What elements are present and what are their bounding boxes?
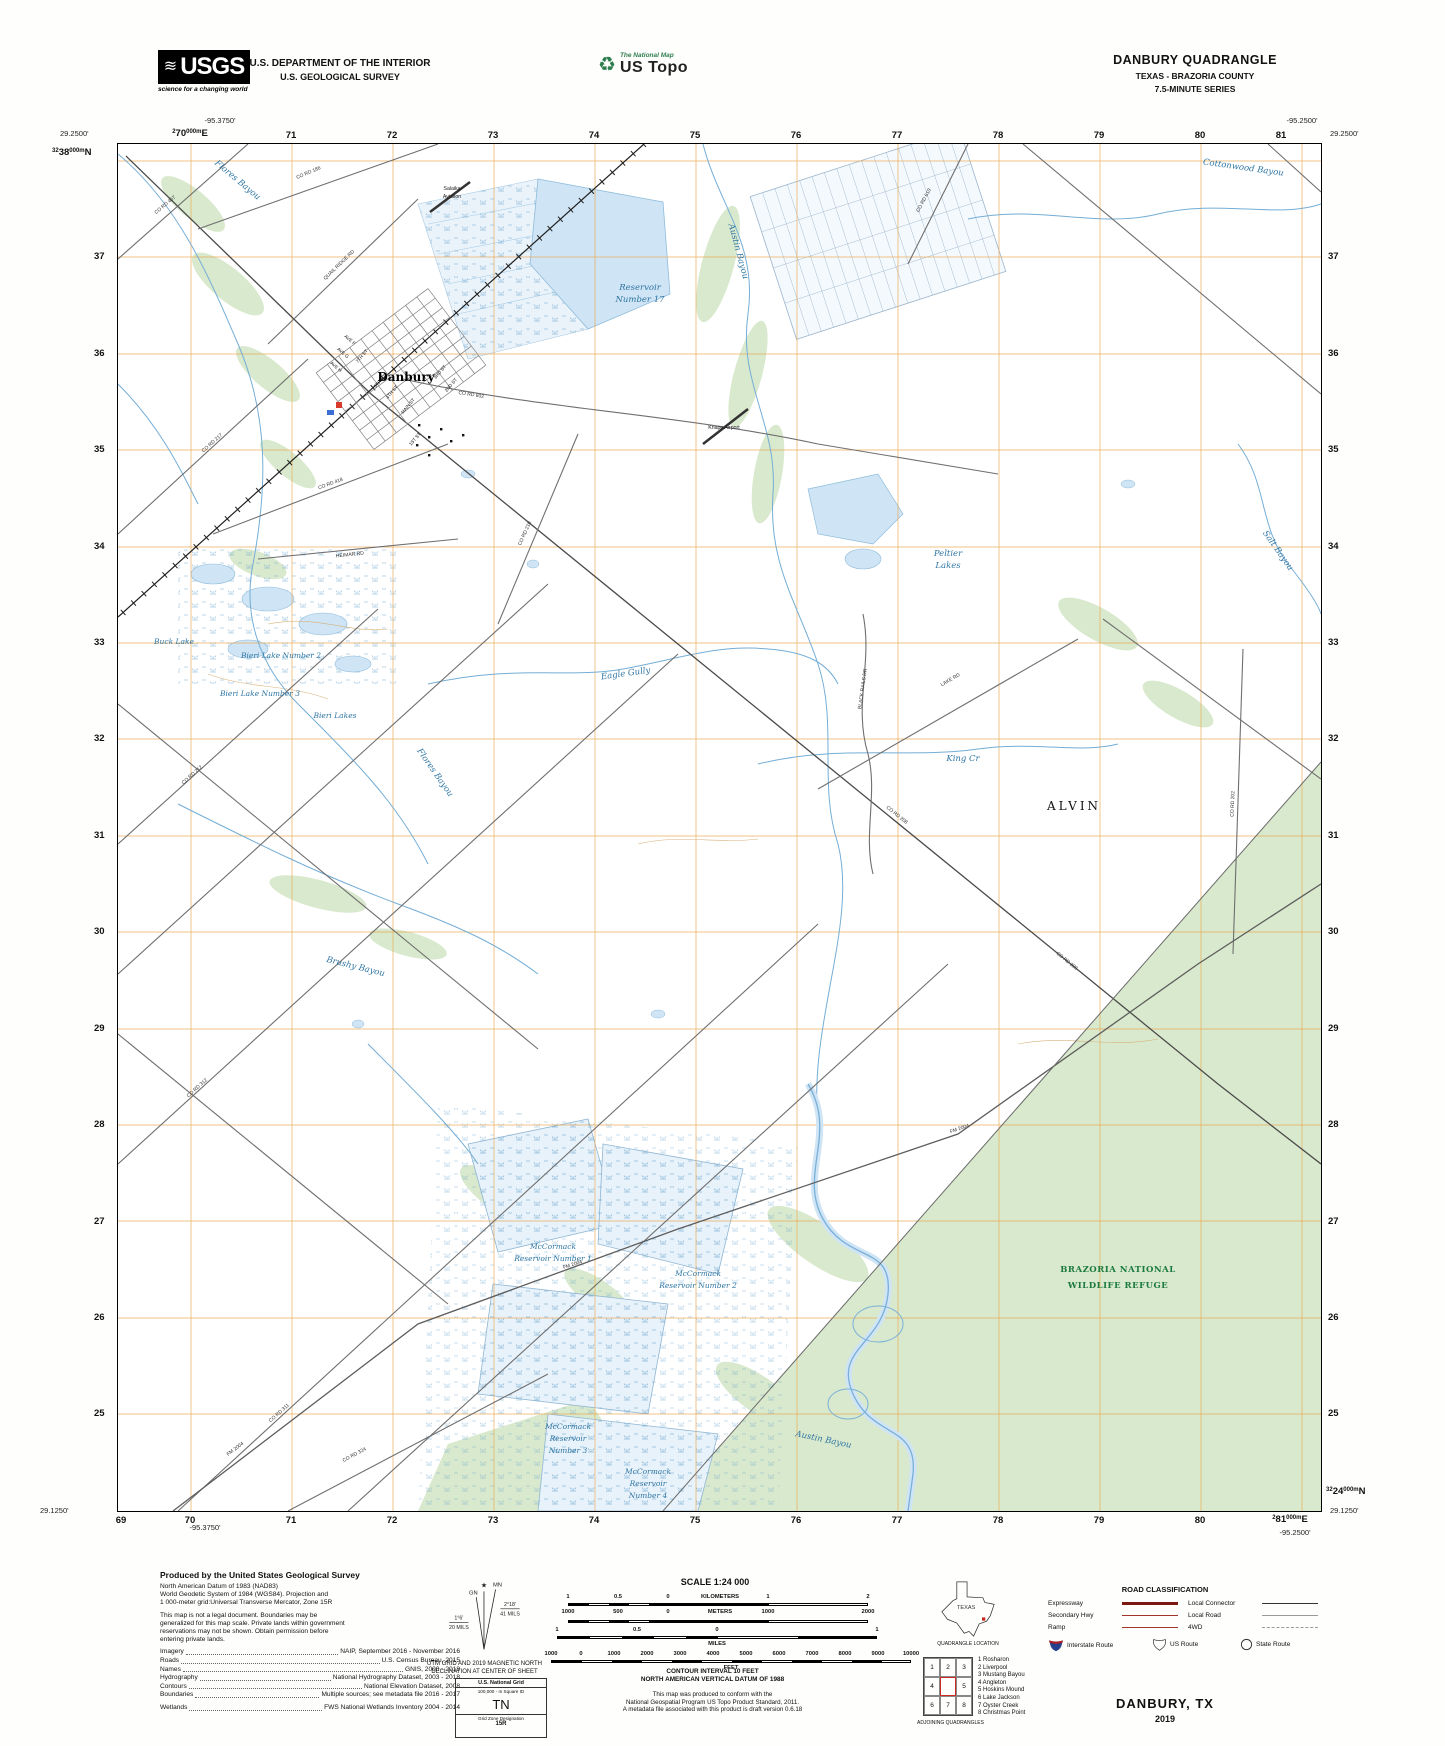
scale-unit-label: KILOMETERS — [701, 1594, 739, 1600]
source-row: ImageryNAIP, September 2016 - November 2… — [160, 1648, 460, 1657]
utm-grid-number: 26 — [94, 1312, 105, 1323]
utm-grid-number: 31 — [94, 830, 105, 841]
utm-grid-number: 32 — [94, 733, 105, 744]
usgs-tagline: science for a changing world — [158, 86, 278, 93]
airport-label: Aviation — [443, 194, 461, 200]
mn-declination-value: 2°18' — [504, 1602, 516, 1608]
water-label: Reservoir — [618, 283, 662, 293]
scale-bar-m — [668, 1620, 868, 1623]
source-row: WetlandsFWS National Wetlands Inventory … — [160, 1704, 460, 1713]
quad-title: DANBURY QUADRANGLE — [1045, 53, 1345, 67]
road-label: CO RD 602 — [458, 390, 485, 400]
usgs-logo: ≋ USGS — [158, 50, 250, 84]
ustopo-icon: ♻ — [598, 52, 616, 77]
scale-title: SCALE 1:24 000 — [540, 1577, 890, 1587]
dept-line2: U.S. GEOLOGICAL SURVEY — [240, 72, 440, 82]
water-label: Salt Bayou — [1260, 529, 1295, 573]
declination-diagram: ★ MN GN 1°6' 20 MILS 2°18' 41 MILS — [438, 1576, 528, 1658]
adjoining-cell: 7 — [940, 1696, 956, 1715]
refuge-label: BRAZORIA NATIONAL — [1060, 1265, 1176, 1275]
adjoining-cell: 2 — [940, 1658, 956, 1677]
utm-grid-number: 28 — [1328, 1119, 1339, 1130]
adjoining-caption: ADJOINING QUADRANGLES — [898, 1720, 1003, 1726]
water-label: Bieri Lake Number 3 — [219, 689, 300, 698]
utm-grid-number: 34 — [94, 541, 105, 552]
corner-coordinate: 29.1250' — [1330, 1506, 1359, 1515]
utm-grid-number: 27 — [94, 1216, 105, 1227]
map-svg: Danbury ALVIN BRAZORIA NATIONAL WILDLIFE… — [118, 144, 1321, 1511]
scale-bar-ft — [581, 1660, 911, 1663]
ustopo-label: US Topo — [620, 59, 688, 77]
interstate-shield-icon — [1048, 1638, 1064, 1652]
source-row: ContoursNational Elevation Dataset, 2008 — [160, 1683, 460, 1692]
scale-tick-label: 2 — [866, 1594, 869, 1600]
quad-series: 7.5-MINUTE SERIES — [1045, 84, 1345, 94]
scale-tick-label: 0 — [666, 1609, 669, 1615]
utm-grid-number: 72 — [387, 130, 398, 141]
usng-box: U.S. National Grid 100,000 - m Square ID… — [455, 1678, 547, 1738]
contour-note: CONTOUR INTERVAL 10 FEET NORTH AMERICAN … — [545, 1668, 880, 1684]
road-label: CO RD 186 — [296, 165, 322, 181]
utm-grid-number: 36 — [1328, 348, 1339, 359]
usgs-topo-sheet: ≋ USGS science for a changing world U.S.… — [0, 0, 1445, 1746]
road-label: CO RD 202 — [1230, 791, 1237, 817]
road-label: BLACK RAILS DR — [857, 668, 869, 710]
ustopo-logo: ♻ The National Map US Topo — [598, 52, 688, 77]
state-route-legend: State Route — [1240, 1638, 1290, 1651]
state-route-circle-icon — [1240, 1638, 1253, 1651]
road-class-row: Expressway — [1048, 1600, 1178, 1607]
gn-declination-value: 1°6' — [454, 1615, 463, 1621]
adjoining-quad-names: 1 Rosharon 2 Liverpool 3 Mustang Bayou 4… — [978, 1657, 1025, 1718]
utm-grid-number: 25 — [1328, 1408, 1339, 1419]
road-label: CO RD 311 — [268, 1402, 291, 1424]
adjoining-cell: 8 — [956, 1696, 972, 1715]
grid-north-label: GN — [469, 1590, 478, 1596]
water-label: Number 17 — [614, 295, 665, 305]
utm-grid-number: 3224000mN — [1326, 1486, 1366, 1497]
street-label: 7TH ST — [355, 348, 369, 363]
scale-tick-label: 0.5 — [633, 1627, 641, 1633]
scale-tick-label: 5000 — [740, 1651, 753, 1657]
road-label: CO RD 457 — [154, 194, 178, 215]
utm-grid-number: 281000mE — [1272, 1514, 1308, 1525]
scale-unit-label: MILES — [708, 1641, 726, 1647]
scale-tick-label: 1 — [766, 1594, 769, 1600]
utm-grid-number: 70 — [185, 1515, 196, 1526]
city-label: ALVIN — [1046, 799, 1101, 813]
national-map-label: The National Map — [620, 52, 688, 59]
water-label: McCormack — [544, 1422, 592, 1431]
utm-grid-number: 74 — [589, 1515, 600, 1526]
quad-state: TEXAS - BRAZORIA COUNTY — [1045, 71, 1345, 81]
utm-grid-number: 27 — [1328, 1216, 1339, 1227]
usng-square-id: TN — [456, 1694, 546, 1714]
usng-title: U.S. National Grid — [456, 1679, 546, 1688]
water-label: Eagle Gully — [599, 666, 651, 683]
water-label: Number 4 — [628, 1491, 668, 1500]
utm-grid-number: 76 — [791, 1515, 802, 1526]
scale-tick-label: 6000 — [773, 1651, 786, 1657]
scale-tick-label: 2000 — [862, 1609, 875, 1615]
us-route-shield-icon — [1152, 1638, 1167, 1651]
water-label: Peltier — [933, 549, 963, 559]
road-label: CO RD 312 — [186, 1077, 209, 1099]
street-label: AVE F — [343, 334, 356, 346]
scale-bar-ft-sub — [551, 1660, 581, 1663]
utm-grid-number: 33 — [94, 637, 105, 648]
adjoining-quadrangles-grid: 1 2 3 4 5 6 7 8 — [923, 1657, 973, 1716]
road-label: CO RD 210 — [517, 520, 533, 546]
utm-grid-number: 80 — [1195, 1515, 1206, 1526]
true-north-star-icon: ★ — [481, 1582, 487, 1590]
scale-bar-m-sub — [568, 1620, 668, 1623]
utm-grid-number: 33 — [1328, 637, 1339, 648]
scale-tick-label: 1000 — [608, 1651, 621, 1657]
water-label: Cottonwood Bayou — [1202, 157, 1284, 178]
water-label: King Cr — [945, 754, 980, 764]
scale-bar-km-sub — [568, 1603, 668, 1606]
corner-coordinate: 29.2500' — [1330, 129, 1359, 138]
utm-grid-number: 71 — [286, 1515, 297, 1526]
water-label: Reservoir Number 2 — [658, 1281, 737, 1290]
water-label: Reservoir — [549, 1434, 587, 1443]
utm-grid-number: 73 — [488, 1515, 499, 1526]
legal-line: generalized for this map scale. Private … — [160, 1620, 460, 1628]
street-label: 3RD ST — [433, 364, 447, 380]
utm-grid-number: 71 — [286, 130, 297, 141]
utm-grid-number: 81 — [1276, 130, 1287, 141]
adjoining-cell: 1 — [924, 1658, 940, 1677]
scale-tick-label: 500 — [613, 1609, 623, 1615]
utm-grid-number: 78 — [993, 130, 1004, 141]
datum-line: 1 000-meter grid:Universal Transverse Me… — [160, 1599, 460, 1607]
scale-tick-label: 9000 — [872, 1651, 885, 1657]
datum-line: North American Datum of 1983 (NAD83) — [160, 1583, 460, 1591]
legal-line: entering private lands. — [160, 1636, 460, 1644]
scale-unit-label: METERS — [708, 1609, 732, 1615]
usng-zone: 15R — [456, 1721, 546, 1727]
utm-grid-number: 26 — [1328, 1312, 1339, 1323]
usgs-logo-text: USGS — [180, 53, 244, 81]
map-area: Danbury ALVIN BRAZORIA NATIONAL WILDLIFE… — [117, 143, 1322, 1512]
usng-zone-label: Grid Zone Designation — [456, 1714, 546, 1721]
usgs-wave-icon: ≋ — [164, 59, 177, 75]
scale-bar-mi-sub — [557, 1636, 717, 1639]
corner-coordinate: -95.2500' — [1279, 1528, 1310, 1537]
adjoining-cell: 6 — [924, 1696, 940, 1715]
road-label: CO RD 217 — [201, 432, 224, 454]
us-route-legend: US Route — [1152, 1638, 1198, 1651]
water-label: Lakes — [934, 561, 961, 571]
street-label: MAIN ST — [400, 397, 416, 415]
scale-tick-label: 1000 — [545, 1651, 558, 1657]
scale-tick-label: 8000 — [839, 1651, 852, 1657]
utm-grid-number: 76 — [791, 130, 802, 141]
road-label: CO RD 208 — [1055, 951, 1079, 972]
sheet-title: DANBURY, TX — [1040, 1696, 1290, 1711]
scale-tick-label: 0 — [666, 1594, 669, 1600]
conformance-note: This map was produced to conform with th… — [545, 1691, 880, 1714]
legal-line: This map is not a legal document. Bounda… — [160, 1612, 460, 1620]
scale-tick-label: 0 — [715, 1627, 718, 1633]
road-classification-title: ROAD CLASSIFICATION — [1040, 1585, 1290, 1594]
water-label: McCormack — [529, 1242, 577, 1251]
mn-declination-mils: 41 MILS — [500, 1612, 520, 1618]
interstate-route-legend: Interstate Route — [1048, 1638, 1113, 1652]
utm-grid-number: 78 — [993, 1515, 1004, 1526]
texas-outline: TEXAS — [940, 1580, 996, 1638]
utm-grid-number: 72 — [387, 1515, 398, 1526]
utm-grid-number: 35 — [1328, 444, 1339, 455]
street-label: 1ST ST — [408, 431, 422, 446]
road-class-row: 4WD — [1188, 1624, 1318, 1631]
utm-grid-number: 34 — [1328, 541, 1339, 552]
road-label: LAKE RD — [940, 672, 962, 688]
water-label: Bieri Lake Number 2 — [240, 651, 321, 660]
production-notes: Produced by the United States Geological… — [160, 1570, 460, 1713]
utm-grid-number: 73 — [488, 130, 499, 141]
scale-tick-label: 1 — [566, 1594, 569, 1600]
utm-grid-number: 37 — [1328, 251, 1339, 262]
quadrangle-location-caption: QUADRANGLE LOCATION — [918, 1641, 1018, 1647]
dept-line1: U.S. DEPARTMENT OF THE INTERIOR — [240, 58, 440, 69]
adjoining-cell: 4 — [924, 1677, 940, 1696]
utm-grid-number: 29 — [94, 1023, 105, 1034]
water-label: McCormack — [624, 1467, 672, 1476]
utm-grid-number: 74 — [589, 130, 600, 141]
water-label: Bieri Lakes — [312, 711, 356, 720]
road-class-row: Ramp — [1048, 1624, 1178, 1631]
utm-grid-number: 79 — [1094, 130, 1105, 141]
street-label: AVE H — [329, 361, 343, 373]
scale-tick-label: 7000 — [806, 1651, 819, 1657]
street-label: 4TH ST — [385, 384, 399, 399]
utm-grid-number: 36 — [94, 348, 105, 359]
utm-grid-number: 75 — [690, 130, 701, 141]
corner-coordinate: -95.2500' — [1286, 116, 1317, 125]
road-class-row: Secondary Hwy — [1048, 1612, 1178, 1619]
corner-coordinate: -95.3750' — [204, 116, 235, 125]
road-label: CO RD 212 — [181, 764, 204, 786]
utm-grid-number: 31 — [1328, 830, 1339, 841]
road-label: FM 2004 — [226, 1441, 246, 1458]
utm-grid-number: 80 — [1195, 130, 1206, 141]
quadrangle-title-block: DANBURY QUADRANGLE TEXAS - BRAZORIA COUN… — [1045, 53, 1345, 94]
scale-tick-label: 10000 — [903, 1651, 919, 1657]
adjoining-cell-center — [940, 1677, 956, 1696]
utm-grid-number: 270000mE — [172, 128, 208, 139]
scale-tick-label: 1 — [555, 1627, 558, 1633]
utm-grid-number: 37 — [94, 251, 105, 262]
quad-location-marker — [982, 1617, 985, 1620]
utm-grid-number: 35 — [94, 444, 105, 455]
scale-tick-label: 1 — [875, 1627, 878, 1633]
refuge-label: WILDLIFE REFUGE — [1067, 1281, 1169, 1291]
water-label: Buck Lake — [153, 637, 194, 646]
scale-tick-label: 3000 — [674, 1651, 687, 1657]
magnetic-north-label: MN — [493, 1583, 502, 1589]
water-label: Flores Bayou — [212, 158, 263, 203]
scale-tick-label: 1000 — [562, 1609, 575, 1615]
utm-grid-number: 28 — [94, 1119, 105, 1130]
utm-grid-number: 30 — [94, 926, 105, 937]
utm-grid-number: 69 — [116, 1515, 127, 1526]
utm-grid-number: 29 — [1328, 1023, 1339, 1034]
road-label: QUAIL RIDGE RD — [323, 249, 357, 282]
produced-by-title: Produced by the United States Geological… — [160, 1570, 460, 1580]
gn-declination-mils: 20 MILS — [449, 1625, 469, 1631]
airport-label: Knape Airport — [708, 425, 740, 431]
utm-grid-number: 77 — [892, 130, 903, 141]
source-row: BoundariesMultiple sources; see metadata… — [160, 1691, 460, 1700]
scale-bar-mi — [717, 1636, 877, 1639]
water-label: Brushy Bayou — [324, 955, 385, 979]
utm-grid-number: 25 — [94, 1408, 105, 1419]
utm-grid-number: 75 — [690, 1515, 701, 1526]
scale-tick-label: 1000 — [762, 1609, 775, 1615]
water-label: Flores Bayou — [414, 746, 455, 799]
airport-label: Salaika — [443, 186, 460, 192]
adjoining-cell: 3 — [956, 1658, 972, 1677]
utm-grid-number: 30 — [1328, 926, 1339, 937]
scale-tick-label: 0.5 — [614, 1594, 622, 1600]
scale-tick-label: 4000 — [707, 1651, 720, 1657]
texas-label: TEXAS — [957, 1605, 976, 1611]
utm-grid-number: 79 — [1094, 1515, 1105, 1526]
datum-line: World Geodetic System of 1984 (WGS84). P… — [160, 1591, 460, 1599]
corner-coordinate: 29.2500' — [60, 129, 89, 138]
road-class-row: Local Connector — [1188, 1600, 1318, 1607]
contour-layer — [208, 621, 1158, 1044]
sheet-year: 2019 — [1040, 1714, 1290, 1724]
water-label: Reservoir — [629, 1479, 667, 1488]
utm-grid-number: 77 — [892, 1515, 903, 1526]
scale-tick-label: 2000 — [641, 1651, 654, 1657]
scale-bar-km — [668, 1603, 868, 1606]
utm-grid-number: 32 — [1328, 733, 1339, 744]
road-label: CO RD 324 — [342, 1446, 368, 1464]
corner-coordinate: 29.1250' — [40, 1506, 69, 1515]
legal-line: reservations may not be shown. Obtain pe… — [160, 1628, 460, 1636]
road-class-row: Local Road — [1188, 1612, 1318, 1619]
utm-grid-number: 3238000mN — [52, 147, 92, 158]
adjoining-cell: 5 — [956, 1677, 972, 1696]
scale-tick-label: 0 — [579, 1651, 582, 1657]
water-label: Number 3 — [548, 1446, 588, 1455]
department-heading: U.S. DEPARTMENT OF THE INTERIOR U.S. GEO… — [240, 58, 440, 82]
water-label: McCormack — [674, 1269, 722, 1278]
street-label: 2ND ST — [444, 377, 458, 393]
